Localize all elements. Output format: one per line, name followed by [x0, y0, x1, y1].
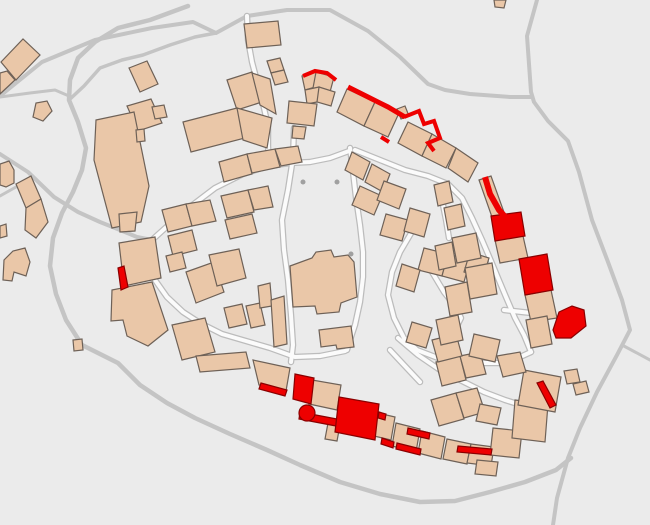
- building-footprint[interactable]: [0, 224, 7, 238]
- building-footprint[interactable]: [73, 339, 83, 351]
- building-footprint[interactable]: [119, 212, 137, 232]
- building-footprint[interactable]: [435, 242, 456, 270]
- building-footprint[interactable]: [444, 204, 465, 230]
- building-footprint[interactable]: [136, 129, 145, 142]
- building-footprint[interactable]: [152, 105, 167, 119]
- building-footprint[interactable]: [434, 181, 453, 206]
- highlighted-building[interactable]: [378, 412, 386, 420]
- building-footprint[interactable]: [436, 315, 463, 345]
- building-footprint[interactable]: [319, 326, 354, 349]
- map-dot: [349, 252, 354, 257]
- building-footprint[interactable]: [292, 126, 306, 139]
- building-footprint[interactable]: [258, 283, 272, 308]
- building-footprint[interactable]: [465, 263, 497, 299]
- map-dot: [301, 180, 306, 185]
- highlighted-round-building[interactable]: [299, 405, 315, 421]
- building-footprint[interactable]: [475, 460, 498, 476]
- building-footprint[interactable]: [287, 101, 317, 126]
- building-footprint[interactable]: [573, 381, 589, 395]
- building-footprint[interactable]: [445, 282, 472, 316]
- building-footprint[interactable]: [452, 233, 481, 263]
- map-viewport: [0, 0, 650, 525]
- building-footprint[interactable]: [494, 0, 506, 8]
- map-dot: [335, 180, 340, 185]
- highlighted-building[interactable]: [293, 374, 314, 404]
- building-footprint[interactable]: [497, 352, 526, 377]
- highlighted-building[interactable]: [335, 397, 379, 440]
- building-footprint[interactable]: [244, 21, 281, 48]
- building-footprint[interactable]: [271, 296, 287, 347]
- building-footprint[interactable]: [476, 404, 501, 425]
- building-footprint[interactable]: [196, 352, 250, 372]
- building-footprint[interactable]: [564, 369, 580, 384]
- building-footprint[interactable]: [186, 200, 216, 226]
- highlighted-building[interactable]: [519, 254, 553, 295]
- map-canvas[interactable]: [0, 0, 650, 525]
- building-footprint[interactable]: [166, 252, 186, 272]
- building-footprint[interactable]: [526, 316, 552, 348]
